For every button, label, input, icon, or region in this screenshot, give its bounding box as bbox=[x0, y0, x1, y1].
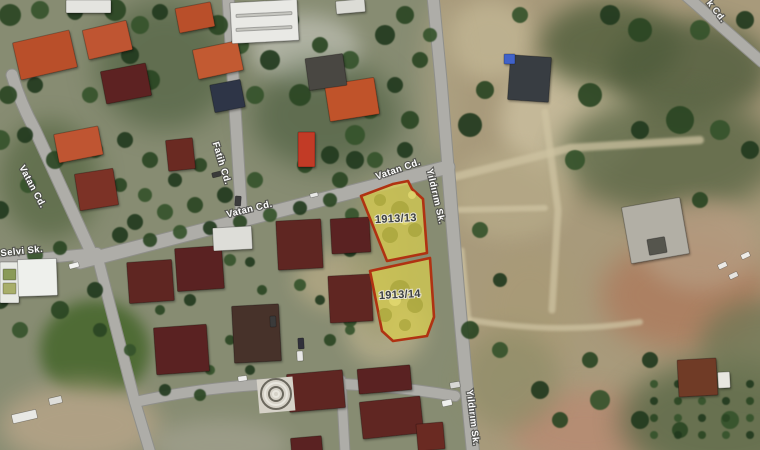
vehicle bbox=[717, 261, 727, 269]
tree bbox=[157, 204, 173, 220]
buildings bbox=[0, 0, 730, 450]
parcel-texture bbox=[378, 308, 392, 322]
building bbox=[127, 259, 175, 303]
tree bbox=[698, 431, 706, 439]
tree bbox=[289, 84, 311, 106]
tree bbox=[117, 132, 133, 148]
tree bbox=[168, 173, 182, 187]
parcel-texture bbox=[408, 191, 416, 199]
tree bbox=[124, 344, 136, 356]
building bbox=[677, 358, 718, 397]
building bbox=[359, 396, 424, 439]
tree bbox=[746, 380, 754, 388]
tree bbox=[375, 25, 395, 45]
tree bbox=[51, 301, 69, 319]
tree bbox=[746, 431, 754, 439]
tree bbox=[217, 187, 233, 203]
tree bbox=[674, 431, 682, 439]
tree bbox=[492, 342, 508, 358]
parcel-texture bbox=[374, 194, 386, 206]
tree bbox=[0, 130, 10, 150]
building bbox=[212, 226, 252, 251]
tree bbox=[0, 4, 21, 26]
building bbox=[330, 217, 371, 254]
tree bbox=[324, 334, 336, 346]
tree bbox=[332, 172, 348, 188]
tree bbox=[345, 125, 365, 145]
tree bbox=[476, 81, 494, 99]
tree bbox=[131, 16, 149, 34]
tree bbox=[674, 397, 682, 405]
tree bbox=[224, 254, 236, 266]
building bbox=[232, 304, 282, 363]
dirt-path bbox=[470, 320, 640, 328]
tree bbox=[423, 28, 437, 42]
tree bbox=[650, 431, 658, 439]
building bbox=[286, 370, 345, 413]
tree bbox=[184, 294, 196, 306]
tree bbox=[346, 151, 364, 169]
tree bbox=[710, 120, 730, 140]
tree bbox=[736, 11, 754, 29]
tree bbox=[17, 127, 33, 143]
street-label-fatih-cd: Fatih Cd. bbox=[210, 141, 233, 187]
building bbox=[305, 54, 347, 91]
tree bbox=[590, 390, 610, 410]
building bbox=[290, 436, 322, 450]
building bbox=[357, 365, 412, 395]
parcel-texture bbox=[399, 319, 411, 331]
tree bbox=[142, 152, 158, 168]
dirt-path bbox=[452, 208, 545, 210]
tree bbox=[173, 225, 187, 239]
tree bbox=[93, 323, 107, 337]
tree bbox=[722, 431, 730, 439]
tree bbox=[138, 188, 152, 202]
vehicle bbox=[297, 351, 304, 361]
tree bbox=[698, 414, 706, 422]
tree bbox=[578, 83, 602, 107]
building bbox=[3, 269, 16, 280]
tree bbox=[397, 142, 413, 158]
tree bbox=[27, 77, 43, 93]
tree bbox=[461, 321, 479, 339]
tree bbox=[127, 214, 143, 230]
tree bbox=[245, 257, 255, 267]
tree bbox=[260, 50, 280, 70]
vehicle bbox=[441, 399, 452, 407]
tree bbox=[246, 86, 264, 104]
tree bbox=[741, 141, 759, 159]
tree bbox=[565, 150, 585, 170]
tree bbox=[155, 305, 165, 315]
tree bbox=[82, 87, 98, 103]
tree bbox=[293, 201, 307, 215]
building bbox=[74, 168, 118, 211]
tree bbox=[0, 201, 9, 219]
vehicle bbox=[238, 375, 248, 381]
building bbox=[165, 138, 195, 172]
tree bbox=[690, 20, 710, 40]
tree bbox=[152, 4, 168, 20]
tree bbox=[692, 192, 708, 208]
building bbox=[298, 132, 315, 167]
tree bbox=[53, 241, 67, 255]
vehicle bbox=[728, 271, 738, 279]
tree bbox=[472, 222, 488, 238]
building bbox=[328, 274, 373, 323]
tree bbox=[666, 106, 694, 134]
tree bbox=[631, 121, 649, 139]
building bbox=[230, 0, 299, 44]
vehicle bbox=[235, 196, 242, 206]
tree bbox=[698, 397, 706, 405]
tree bbox=[642, 352, 658, 368]
building bbox=[3, 283, 16, 294]
tree bbox=[674, 414, 682, 422]
tree bbox=[187, 197, 203, 213]
tree bbox=[143, 233, 157, 247]
building bbox=[153, 324, 209, 375]
building bbox=[276, 219, 324, 270]
tree bbox=[493, 273, 507, 287]
vehicle bbox=[270, 316, 276, 327]
tree bbox=[294, 279, 306, 291]
tree bbox=[401, 111, 419, 129]
parcel-texture bbox=[408, 223, 422, 237]
tree bbox=[650, 397, 658, 405]
tree bbox=[315, 295, 325, 305]
tree bbox=[582, 352, 598, 368]
dirt-path bbox=[545, 112, 558, 310]
tree bbox=[245, 365, 255, 375]
tree bbox=[746, 397, 754, 405]
parcel-number-1913-13: 1913/13 bbox=[375, 212, 417, 226]
building bbox=[416, 422, 445, 450]
tree bbox=[631, 411, 649, 429]
building bbox=[210, 79, 246, 112]
tree bbox=[396, 6, 414, 24]
tree bbox=[628, 18, 652, 42]
tree bbox=[722, 397, 730, 405]
tree bbox=[87, 282, 103, 298]
vehicle bbox=[450, 381, 461, 389]
satellite-map[interactable]: Vatan Cd. Vatan Cd. Vatan Cd. Fatih Cd. … bbox=[0, 0, 760, 450]
tree bbox=[458, 113, 482, 137]
tree bbox=[387, 77, 403, 93]
tree bbox=[159, 384, 171, 396]
tree bbox=[112, 227, 128, 243]
tree bbox=[345, 325, 355, 335]
building bbox=[100, 63, 151, 104]
tree bbox=[321, 146, 339, 164]
building bbox=[647, 237, 668, 256]
tree bbox=[746, 414, 754, 422]
building bbox=[17, 258, 57, 296]
tree bbox=[600, 5, 620, 25]
tree bbox=[650, 380, 658, 388]
tree bbox=[257, 285, 267, 295]
vehicle bbox=[48, 396, 62, 406]
building bbox=[66, 0, 111, 13]
map-canvas: Vatan Cd. Vatan Cd. Vatan Cd. Fatih Cd. … bbox=[0, 0, 760, 450]
tree bbox=[722, 414, 730, 422]
building bbox=[335, 0, 365, 14]
tree bbox=[247, 172, 263, 188]
building bbox=[504, 54, 515, 64]
tree bbox=[12, 322, 28, 338]
tree bbox=[650, 414, 658, 422]
parcel-number-1913-14: 1913/14 bbox=[379, 288, 422, 302]
building bbox=[718, 372, 731, 389]
tree bbox=[552, 412, 568, 428]
tree bbox=[31, 1, 49, 19]
vehicle bbox=[11, 409, 37, 423]
tree bbox=[531, 381, 549, 399]
vehicle bbox=[740, 251, 750, 259]
tree bbox=[367, 152, 383, 168]
tree bbox=[323, 193, 337, 207]
building bbox=[12, 30, 77, 80]
parcel-texture bbox=[382, 227, 398, 243]
misc-structures bbox=[257, 376, 296, 413]
tree bbox=[512, 7, 528, 23]
tree bbox=[412, 52, 428, 68]
tree bbox=[312, 37, 328, 53]
tree bbox=[194, 389, 206, 401]
vehicle bbox=[298, 338, 305, 349]
building bbox=[175, 245, 225, 291]
